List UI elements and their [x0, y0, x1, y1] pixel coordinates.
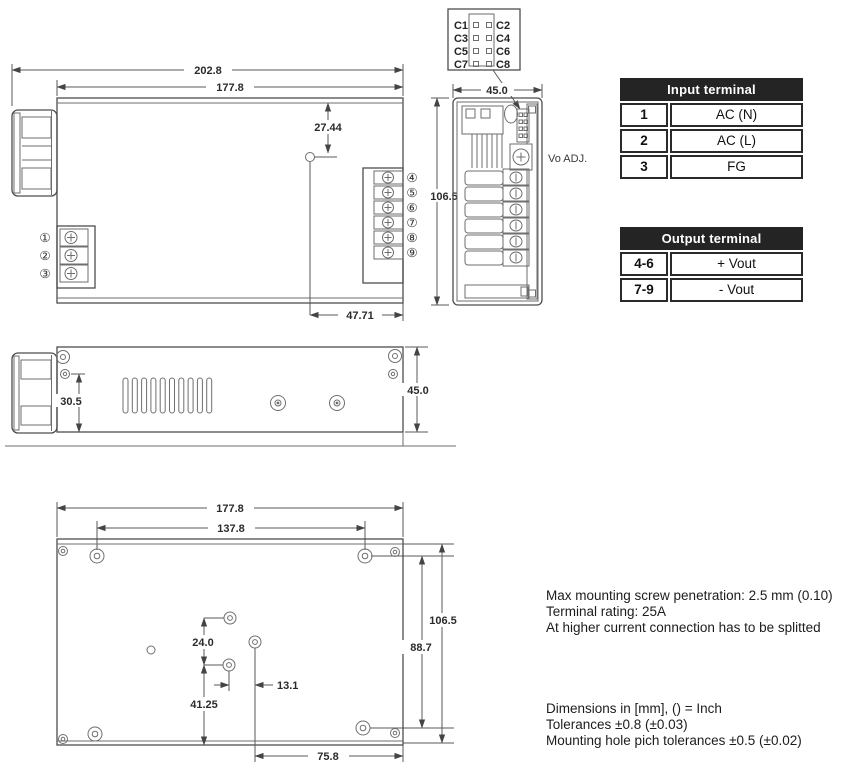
side-hole-mid-2 [330, 396, 345, 411]
dim-side-height: 45.0 [402, 347, 435, 432]
signal-cell: + Vout [670, 252, 803, 276]
side-hole-left-small [61, 370, 70, 379]
pin-label-c1: C1 [454, 20, 468, 32]
pin-cell: 7-9 [620, 278, 668, 302]
pin-label-c2: C2 [496, 20, 510, 32]
center-hole-bottom [223, 659, 235, 671]
vo-adj-label: Vo ADJ. [548, 153, 587, 165]
pin-label-c8: C8 [496, 59, 510, 71]
pin-label-c4: C4 [496, 33, 511, 45]
end-view-terminal-rows [465, 169, 529, 266]
note-line: Dimensions in [mm], () = Inch [546, 701, 802, 717]
table-row: 7-9 - Vout [620, 278, 803, 302]
dim-label-30-5: 30.5 [60, 396, 81, 408]
side-view-drawing: 30.5 45.0 [0, 335, 460, 455]
side-hole-top-right-2 [389, 370, 398, 379]
dim-overall-width: 202.8 [12, 63, 403, 77]
note-line: Mounting hole pich tolerances ±0.5 (±0.0… [546, 733, 802, 749]
mount-hole-bottom-right [356, 721, 370, 735]
dim-hole-from-right: 47.71 [310, 308, 403, 322]
signal-cell: FG [670, 155, 803, 179]
mount-hole-top-left [90, 549, 104, 563]
small-hole [147, 646, 155, 654]
bottom-view-case-outline [57, 539, 403, 745]
note-line: Max mounting screw penetration: 2.5 mm (… [546, 588, 833, 604]
fan-side-view [12, 353, 57, 433]
note-line: At higher current connection has to be s… [546, 620, 833, 636]
input-terminal-block: ① ② ③ [39, 226, 95, 288]
dim-label-24-0: 24.0 [192, 637, 213, 649]
dim-label-45-0: 45.0 [486, 85, 507, 97]
pin-label-c7: C7 [454, 59, 468, 71]
pin-cell: 3 [620, 155, 668, 179]
vent-slots [123, 378, 212, 413]
pin-cell: 2 [620, 129, 668, 153]
end-view-drawing: C1 C3 C5 C7 C2 C4 C6 C8 45.0 106.5 [425, 0, 625, 335]
connector-pinout-box: C1 C3 C5 C7 C2 C4 C6 C8 [448, 9, 520, 71]
terminal-number-7: ⑦ [406, 215, 417, 230]
output-terminal-table-title: Output terminal [620, 227, 803, 250]
input-terminal-table-title: Input terminal [620, 78, 803, 101]
dim-end-width: 45.0 [453, 83, 542, 98]
top-view-drawing: 202.8 177.8 27. [0, 50, 445, 340]
dim-label-41-25: 41.25 [190, 699, 218, 711]
dim-label-27-44: 27.44 [314, 122, 342, 134]
top-hole [306, 153, 315, 162]
end-view-components [462, 105, 532, 298]
dim-label-47-71: 47.71 [346, 310, 374, 322]
vo-adj-potentiometer [510, 144, 532, 170]
top-view-case-outline [57, 98, 403, 303]
terminal-number-6: ⑥ [406, 200, 417, 215]
corner-hole-top-left [59, 547, 68, 556]
side-view-case-outline [57, 347, 403, 432]
side-hole-mid-1 [271, 396, 286, 411]
corner-hole-bottom-left [59, 735, 68, 744]
pin-label-c5: C5 [454, 46, 468, 58]
dim-label-177-8-bottom: 177.8 [216, 503, 244, 515]
pin-cell: 1 [620, 103, 668, 127]
terminal-number-4: ④ [406, 170, 417, 185]
table-row: 1 AC (N) [620, 103, 803, 127]
side-hole-top-left [57, 351, 70, 364]
mechanical-drawing-page: 202.8 177.8 27. [0, 0, 862, 772]
table-row: 3 FG [620, 155, 803, 179]
signal-cell: AC (N) [670, 103, 803, 127]
pin-label-c6: C6 [496, 46, 510, 58]
bottom-view-drawing: 177.8 137.8 106.5 [30, 490, 480, 772]
dim-side-hole-offset: 30.5 [56, 374, 88, 432]
mount-hole-bottom-left [88, 727, 102, 741]
dim-bottom-case-width: 177.8 [57, 501, 403, 515]
input-terminal-table: Input terminal 1 AC (N) 2 AC (L) 3 FG [620, 78, 803, 179]
signal-cell: - Vout [670, 278, 803, 302]
terminal-number-3: ③ [39, 266, 50, 281]
fan-top-view [12, 110, 57, 196]
terminal-number-2: ② [39, 248, 50, 263]
connector-pin-squares [474, 23, 492, 67]
dim-label-177-8: 177.8 [216, 82, 244, 94]
spec-notes: Max mounting screw penetration: 2.5 mm (… [546, 588, 833, 636]
dim-label-13-1: 13.1 [277, 680, 298, 692]
signal-cell: AC (L) [670, 129, 803, 153]
dim-label-88-7: 88.7 [410, 642, 431, 654]
dim-label-106-5-bottom: 106.5 [429, 615, 457, 627]
dim-label-75-8: 75.8 [317, 751, 338, 763]
note-line: Terminal rating: 25A [546, 604, 833, 620]
dim-right-offset: 75.8 [255, 749, 403, 763]
dim-hole-from-top: 27.44 [306, 103, 350, 157]
corner-hole-top-right [391, 548, 400, 557]
terminal-number-8: ⑧ [406, 230, 417, 245]
dim-label-202-8: 202.8 [194, 65, 222, 77]
terminal-number-1: ① [39, 230, 50, 245]
dim-label-137-8: 137.8 [217, 523, 245, 535]
dim-label-45-0-side: 45.0 [407, 385, 428, 397]
center-hole-top [224, 612, 236, 624]
table-row: 4-6 + Vout [620, 252, 803, 276]
dim-center-offset-y: 41.25 [182, 665, 226, 745]
terminal-number-5: ⑤ [406, 185, 417, 200]
output-terminal-block: ④ ⑤ ⑥ ⑦ ⑧ ⑨ [363, 168, 418, 283]
pin-cell: 4-6 [620, 252, 668, 276]
dim-center-hole-pitch: 24.0 [185, 618, 224, 665]
dimension-notes: Dimensions in [mm], () = Inch Tolerances… [546, 701, 802, 749]
side-hole-top-right-1 [389, 350, 402, 363]
dim-mount-pitch-y: 88.7 [402, 556, 440, 728]
corner-hole-bottom-right [391, 729, 400, 738]
mount-hole-top-right [358, 549, 372, 563]
table-row: 2 AC (L) [620, 129, 803, 153]
heatsink-fins [472, 134, 502, 168]
dim-mount-pitch-x: 137.8 [97, 521, 365, 535]
dim-case-width: 177.8 [57, 80, 403, 94]
center-hole-right [249, 636, 261, 648]
terminal-number-9: ⑨ [406, 245, 417, 260]
pin-label-c3: C3 [454, 33, 468, 45]
output-terminal-table: Output terminal 4-6 + Vout 7-9 - Vout [620, 227, 803, 302]
note-line: Tolerances ±0.8 (±0.03) [546, 717, 802, 733]
